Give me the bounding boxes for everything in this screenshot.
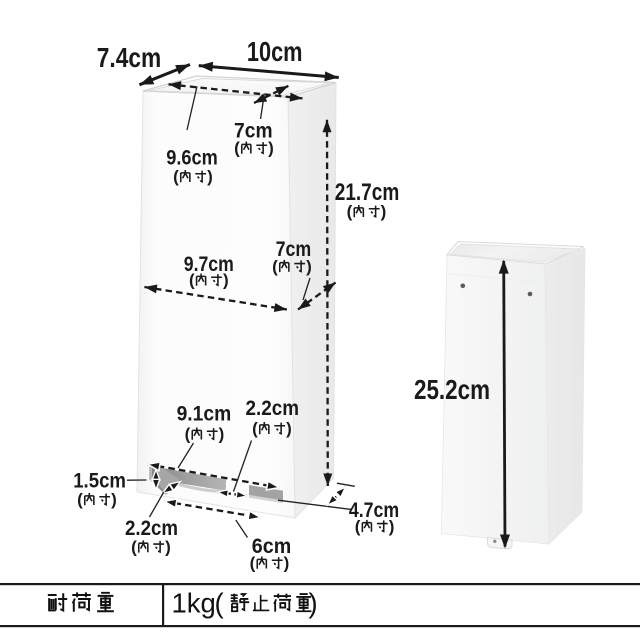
svg-text:2.2cm: 2.2cm bbox=[246, 397, 300, 420]
svg-text:): ) bbox=[309, 588, 318, 619]
svg-text:(: ( bbox=[215, 588, 224, 619]
svg-text:9.1cm: 9.1cm bbox=[177, 403, 232, 426]
svg-text:21.7cm: 21.7cm bbox=[335, 179, 400, 206]
svg-text:1.5cm: 1.5cm bbox=[73, 469, 126, 492]
svg-text:10cm: 10cm bbox=[247, 36, 303, 67]
svg-text:7.4cm: 7.4cm bbox=[97, 42, 162, 73]
svg-text:25.2cm: 25.2cm bbox=[414, 374, 490, 405]
svg-text:1kg: 1kg bbox=[172, 588, 216, 619]
